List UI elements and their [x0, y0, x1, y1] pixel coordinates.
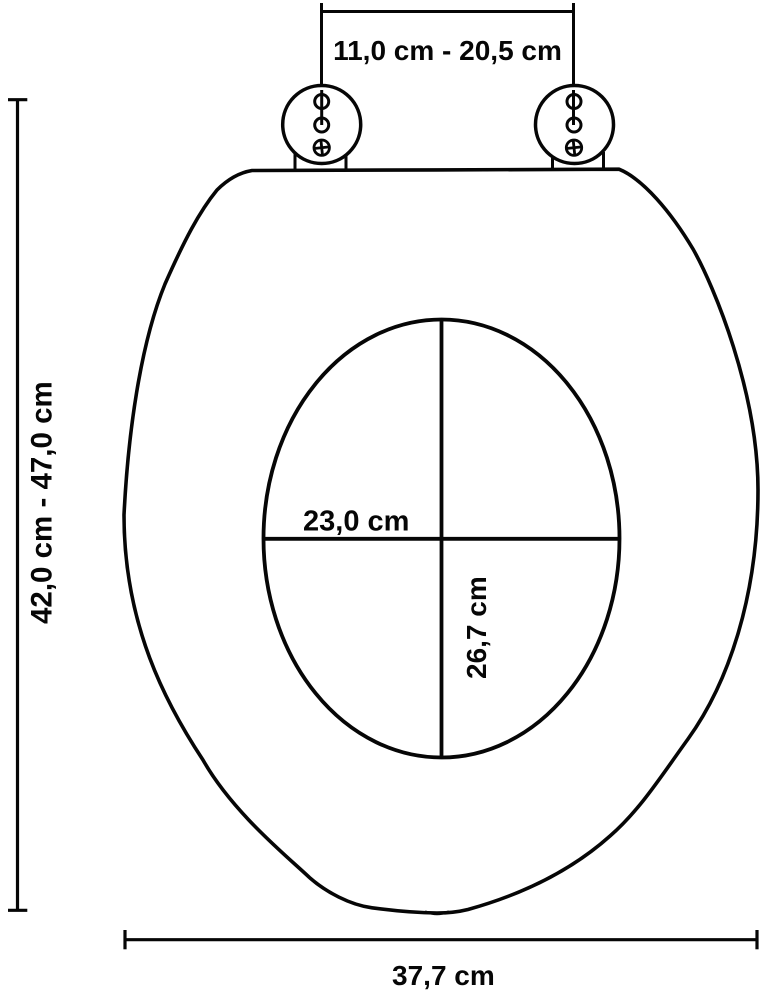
- svg-text:42,0 cm - 47,0 cm: 42,0 cm - 47,0 cm: [26, 381, 59, 624]
- svg-text:37,7 cm: 37,7 cm: [392, 960, 495, 991]
- svg-text:26,7 cm: 26,7 cm: [461, 576, 492, 679]
- svg-text:11,0 cm - 20,5 cm: 11,0 cm - 20,5 cm: [333, 35, 562, 66]
- svg-text:23,0 cm: 23,0 cm: [303, 506, 409, 538]
